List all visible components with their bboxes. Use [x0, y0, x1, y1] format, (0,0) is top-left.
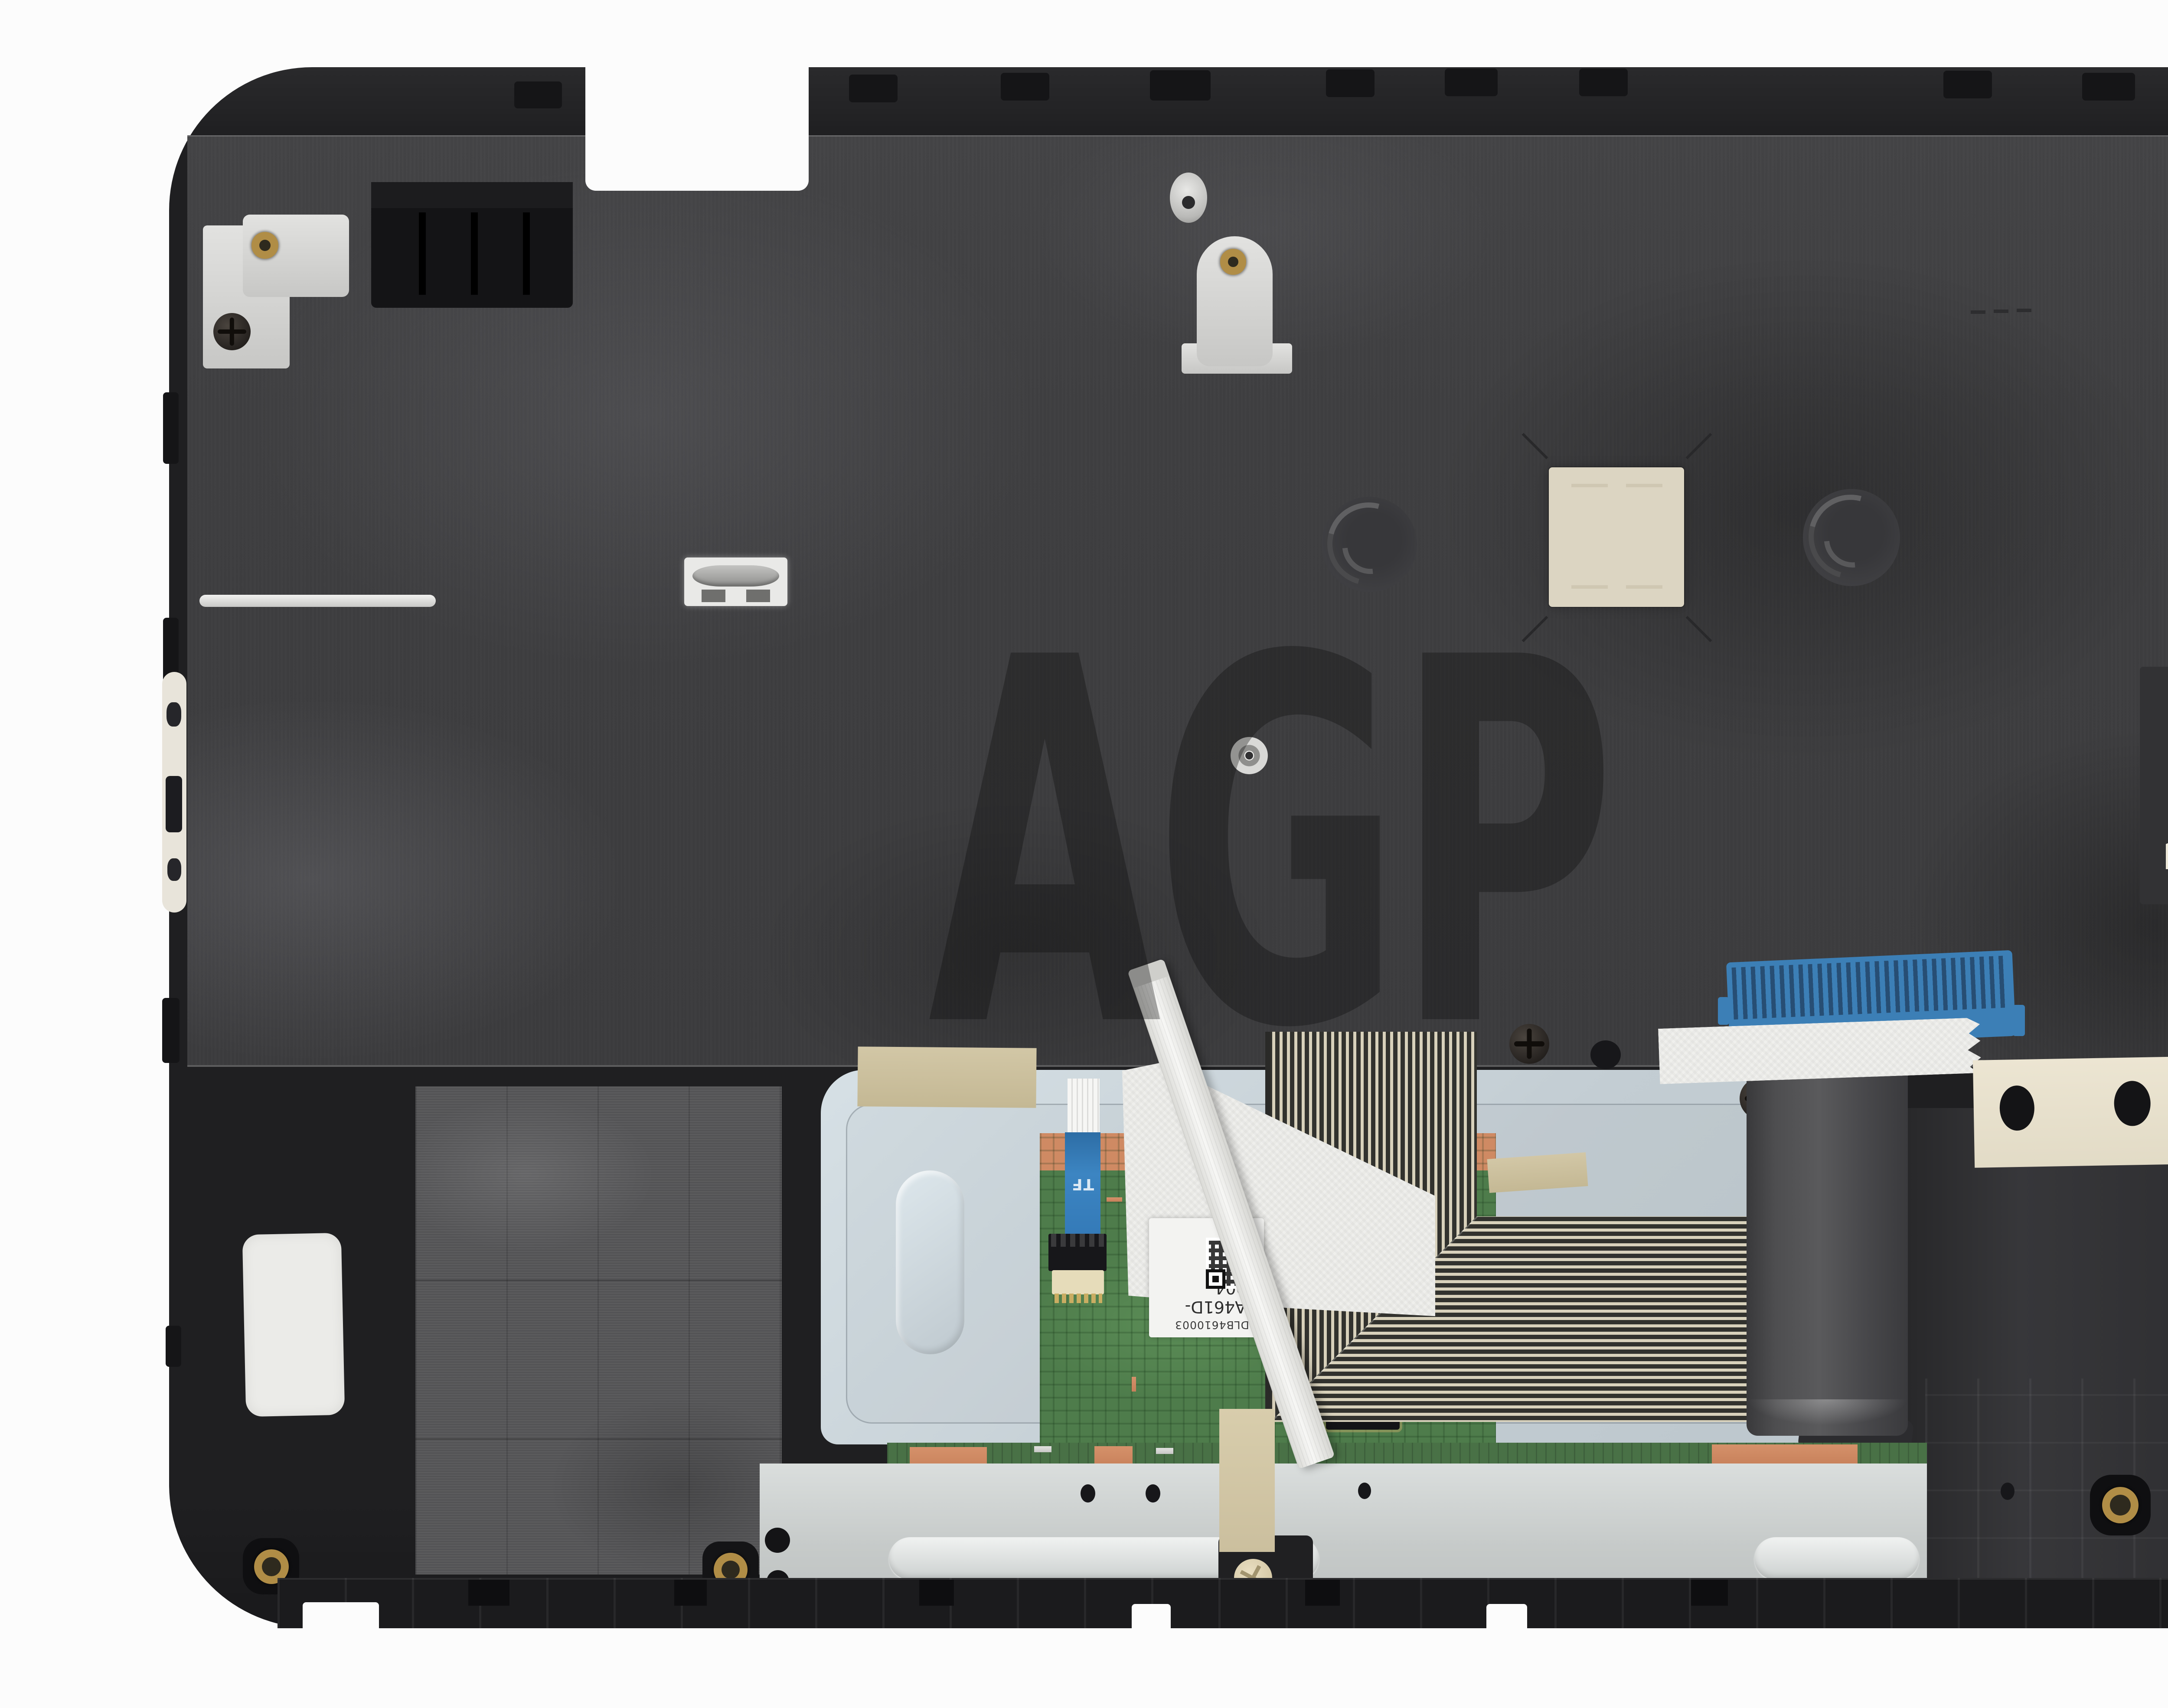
clip-notch	[166, 776, 182, 832]
ffc-marking-text: TF	[1071, 1175, 1094, 1193]
brass-insert	[1228, 257, 1238, 267]
rib-notch	[674, 1580, 707, 1606]
latch-slot	[419, 212, 426, 295]
brass-insert	[259, 240, 271, 251]
connector-base	[1052, 1270, 1104, 1294]
rib-notch	[919, 1580, 954, 1606]
pcb-mark	[1107, 1197, 1122, 1202]
pad-mark	[1626, 484, 1662, 487]
center-bracket-tab	[1197, 236, 1273, 366]
bracket-hole	[1146, 1484, 1160, 1503]
chassis-clip-tab	[1001, 73, 1049, 101]
pad-mark	[1571, 484, 1608, 487]
latch-slot	[523, 212, 530, 295]
chassis-clip-tab	[1943, 71, 1992, 98]
rib-notch	[468, 1580, 509, 1606]
latch-block	[371, 182, 573, 308]
bottom-edge-notch	[1486, 1604, 1527, 1629]
top-edge-notch	[585, 67, 809, 191]
white-sticker	[242, 1233, 345, 1417]
latch-slot	[471, 212, 478, 295]
band-hole	[2114, 1081, 2151, 1126]
latch-window	[684, 557, 787, 606]
pcb-mark	[1132, 1377, 1136, 1392]
tan-tape-vertical	[1219, 1409, 1275, 1552]
cream-band	[1973, 1055, 2168, 1168]
chassis-edge-bump	[163, 392, 179, 464]
ffc-board-connector	[1048, 1234, 1107, 1271]
crease-dash	[2017, 309, 2031, 312]
plate-tab	[1034, 1446, 1051, 1452]
chassis-clip-tab	[514, 81, 562, 108]
grommet-hole	[1182, 196, 1195, 209]
ffc-tab	[2013, 1005, 2025, 1036]
brass-screw-boss	[2110, 1495, 2131, 1516]
watermark-text: AGP	[928, 594, 1609, 1097]
bottom-edge-notch	[303, 1602, 379, 1629]
qr-finder	[1206, 1269, 1225, 1289]
clip-notch	[167, 858, 181, 881]
copper-pad	[1712, 1444, 1858, 1466]
tan-tape	[1487, 1152, 1588, 1193]
chassis-clip-tab	[1445, 68, 1498, 96]
band-hole	[1999, 1085, 2035, 1131]
latch-pocket	[746, 590, 770, 602]
latch-pocket	[702, 590, 725, 602]
latch-rib	[371, 182, 573, 208]
rib-notch	[1691, 1580, 1728, 1606]
bracket-hole	[2001, 1483, 2015, 1500]
crease-dash	[1994, 310, 2008, 313]
clip-notch	[167, 702, 181, 727]
chassis-clip-tab	[1326, 69, 1375, 97]
bracket-hole	[765, 1528, 790, 1553]
connector-pins	[1055, 1294, 1102, 1303]
brass-screw-boss	[262, 1557, 281, 1576]
screw	[213, 313, 251, 350]
felt-pad	[415, 1086, 782, 1574]
ffc-tab	[1718, 997, 1729, 1025]
crease-dash	[1971, 310, 1985, 314]
product-photo-scene: TF ADLB4610003 SA461D-1004	[0, 0, 2168, 1708]
ffc-contact-stripes	[1732, 955, 2010, 1020]
plate-emboss-pill	[896, 1170, 964, 1354]
latch-handle	[692, 565, 779, 587]
ribbon-curl-highlight	[1747, 1399, 1908, 1425]
chassis-clip-tab	[1150, 70, 1211, 101]
connector-teeth	[1051, 1234, 1104, 1247]
hinge-bracket-left-tab	[243, 215, 349, 297]
bracket-hole	[1081, 1484, 1095, 1503]
chassis-edge-bump	[166, 1326, 181, 1367]
plate-tab	[1156, 1448, 1173, 1454]
rib-notch	[1305, 1580, 1340, 1606]
bottom-edge-notch	[1132, 1604, 1171, 1629]
metal-slot-line	[199, 595, 436, 607]
touchpad-ffc-blue: TF	[1065, 1132, 1100, 1235]
bracket-emboss-oval	[1754, 1537, 1919, 1580]
bracket-hole	[1358, 1483, 1371, 1499]
felt-crease	[415, 1438, 782, 1440]
chassis-clip-tab	[849, 75, 898, 102]
side-slot-panel	[2140, 667, 2168, 904]
spiral-cutout	[1803, 489, 1900, 586]
chassis-clip-tab	[1579, 68, 1628, 96]
white-tape-connector	[1658, 1017, 1982, 1084]
pad-mark	[1626, 585, 1662, 589]
brass-screw-boss	[722, 1561, 740, 1579]
label-line1: ADLB4610003	[1175, 1319, 1257, 1331]
keyboard-ribbon	[1747, 1037, 1908, 1436]
felt-crease	[415, 1280, 782, 1281]
chassis-clip-tab	[2082, 73, 2135, 101]
bottom-rib-strip	[278, 1578, 2168, 1628]
left-edge-clips	[162, 672, 186, 913]
chassis-edge-bump	[162, 998, 180, 1063]
